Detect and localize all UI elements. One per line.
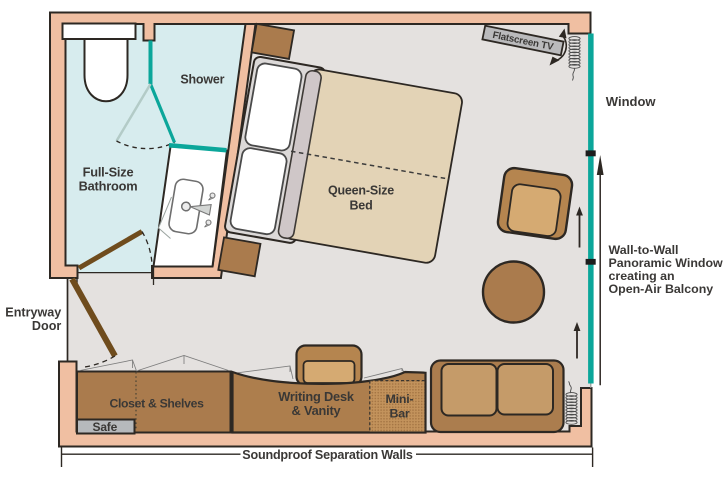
svg-text:Closet & Shelves: Closet & Shelves	[109, 397, 204, 411]
svg-text:Door: Door	[32, 319, 61, 333]
svg-text:Full-Size: Full-Size	[83, 165, 134, 180]
svg-text:Window: Window	[606, 94, 657, 109]
svg-text:& Vanity: & Vanity	[292, 403, 342, 418]
svg-text:Mini-: Mini-	[386, 392, 414, 406]
svg-text:Safe: Safe	[93, 420, 118, 434]
svg-text:creating an: creating an	[609, 269, 675, 283]
svg-text:Soundproof Separation Walls: Soundproof Separation Walls	[242, 448, 413, 462]
svg-text:Bed: Bed	[349, 199, 372, 213]
svg-text:Writing Desk: Writing Desk	[278, 389, 355, 404]
svg-text:Panoramic Window: Panoramic Window	[609, 256, 724, 270]
svg-text:Entryway: Entryway	[5, 306, 61, 320]
svg-text:Bathroom: Bathroom	[79, 179, 138, 194]
svg-text:Shower: Shower	[180, 73, 224, 87]
svg-text:Wall-to-Wall: Wall-to-Wall	[609, 243, 679, 257]
svg-text:Open-Air Balcony: Open-Air Balcony	[609, 282, 714, 296]
svg-text:Queen-Size: Queen-Size	[328, 184, 394, 198]
svg-text:Bar: Bar	[389, 407, 409, 421]
